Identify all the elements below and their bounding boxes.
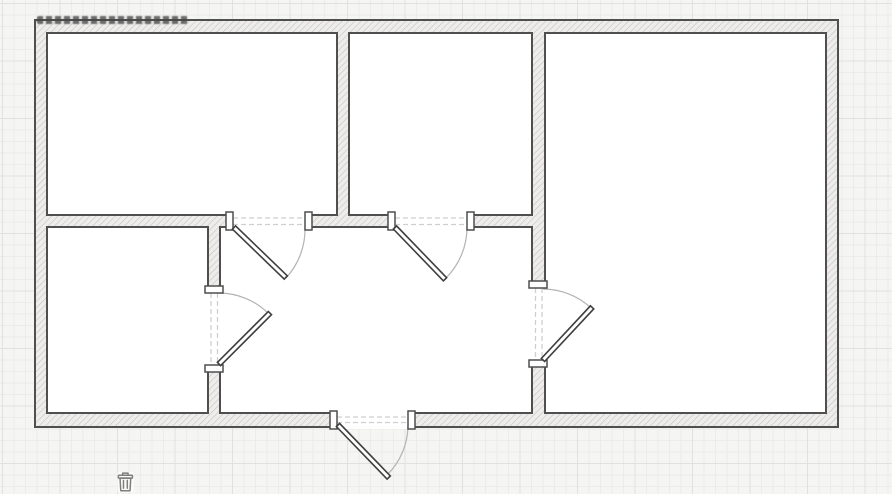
trash-icon[interactable]	[117, 472, 134, 492]
door-opening	[233, 212, 305, 230]
door-jamb	[529, 281, 547, 288]
door-panel[interactable]	[336, 423, 390, 479]
door-jamb	[205, 286, 223, 293]
room-top-middle[interactable]	[349, 33, 532, 215]
door-entrance[interactable]	[330, 411, 415, 479]
floorplan-svg	[0, 0, 892, 494]
door-jamb	[388, 212, 395, 230]
door-swing-arc	[387, 425, 408, 475]
door-jamb	[467, 212, 474, 230]
door-opening	[337, 411, 408, 429]
door-opening	[529, 288, 547, 360]
room-right[interactable]	[545, 33, 826, 413]
door-jamb	[408, 411, 415, 429]
plan-canvas[interactable]	[0, 0, 892, 494]
room-top-left[interactable]	[47, 33, 337, 215]
door-opening	[205, 293, 223, 365]
door-opening	[395, 212, 467, 230]
door-jamb	[305, 212, 312, 230]
room-bottom-left[interactable]	[47, 227, 208, 413]
door-jamb	[226, 212, 233, 230]
